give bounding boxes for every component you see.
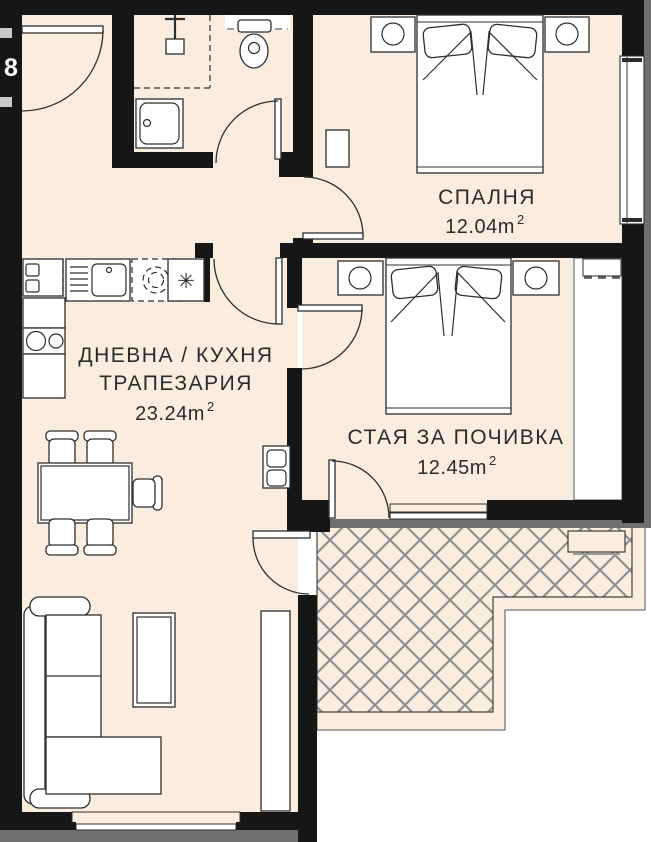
floor-plan-canvas: ✳	[0, 0, 652, 842]
shaft-ac-unit-icon	[583, 259, 621, 277]
dining-table-icon	[38, 463, 132, 523]
kitchen-column-icon	[23, 298, 65, 398]
living-area: 23.24m	[135, 403, 205, 425]
floor-plan-page: ✳	[0, 0, 652, 842]
dining-chair	[46, 431, 78, 467]
dining-chair	[84, 519, 116, 555]
wall-stub	[195, 243, 213, 258]
radiator-icon	[263, 446, 290, 488]
terrace-railing	[317, 519, 651, 528]
coffee-table-icon	[133, 613, 175, 707]
nightstand-icon	[513, 261, 559, 295]
bathroom-sink-icon	[136, 99, 183, 148]
restroom-area-exponent: 2	[489, 453, 496, 468]
wall-horizontal	[280, 243, 644, 258]
fridge-symbol: ✳	[177, 270, 195, 293]
nightstand-icon	[338, 261, 383, 295]
living-window	[70, 812, 242, 830]
wall-left	[0, 0, 22, 830]
terrace-ac-unit-icon	[568, 531, 625, 554]
wall-marker-bottom	[0, 97, 12, 107]
right-gray-strip	[644, 0, 651, 527]
counter-end-wall	[204, 258, 210, 302]
fridge-icon: ✳	[168, 259, 204, 301]
toilet-icon	[238, 20, 271, 68]
bedroom-label: СПАЛНЯ	[438, 186, 536, 209]
kitchen-cabinet-icon	[23, 259, 63, 296]
nightstand-icon	[545, 17, 589, 52]
unit-number: 8	[4, 54, 18, 82]
wall-corner-chunk	[287, 500, 330, 532]
kitchen-sink-icon	[66, 259, 130, 301]
bedroom-area: 12.04m	[445, 216, 515, 238]
living-label-line1: ДНЕВНА / КУХНЯ	[78, 344, 273, 367]
living-label-line2: ТРАПЕЗАРИЯ	[99, 372, 253, 395]
wall-bottom-right	[240, 812, 317, 830]
dining-chair	[84, 431, 116, 467]
double-bed-icon	[386, 258, 511, 414]
bedroom-area-exponent: 2	[517, 212, 524, 227]
wall-bath-south	[134, 152, 213, 168]
wall-terrace-divider	[298, 595, 317, 842]
wardrobe-icon	[326, 130, 349, 167]
double-bed-icon	[417, 15, 543, 173]
wall-bottom-left	[0, 812, 72, 830]
dining-chair	[46, 519, 78, 555]
wall-right-mid	[622, 223, 644, 523]
wall-right-upper	[622, 0, 644, 58]
living-area-exponent: 2	[207, 399, 214, 414]
wall-spine-upper	[293, 15, 313, 177]
light-shaft	[574, 258, 622, 500]
dining-chair	[133, 476, 162, 510]
bedroom-window	[620, 56, 644, 224]
wall-marker-top	[0, 28, 12, 38]
restroom-window	[390, 504, 487, 519]
nightstand-icon	[371, 17, 415, 52]
wall-restroom-se	[487, 500, 644, 520]
restroom-area: 12.45m	[417, 457, 487, 479]
restroom-label: СТАЯ ЗА ПОЧИВКА	[348, 426, 565, 449]
tv-cabinet-icon	[261, 611, 290, 811]
bottom-gray-band	[0, 830, 300, 842]
wall-hall-bath	[112, 15, 134, 168]
wall-divider-a	[287, 258, 302, 308]
wall-top	[0, 0, 644, 15]
